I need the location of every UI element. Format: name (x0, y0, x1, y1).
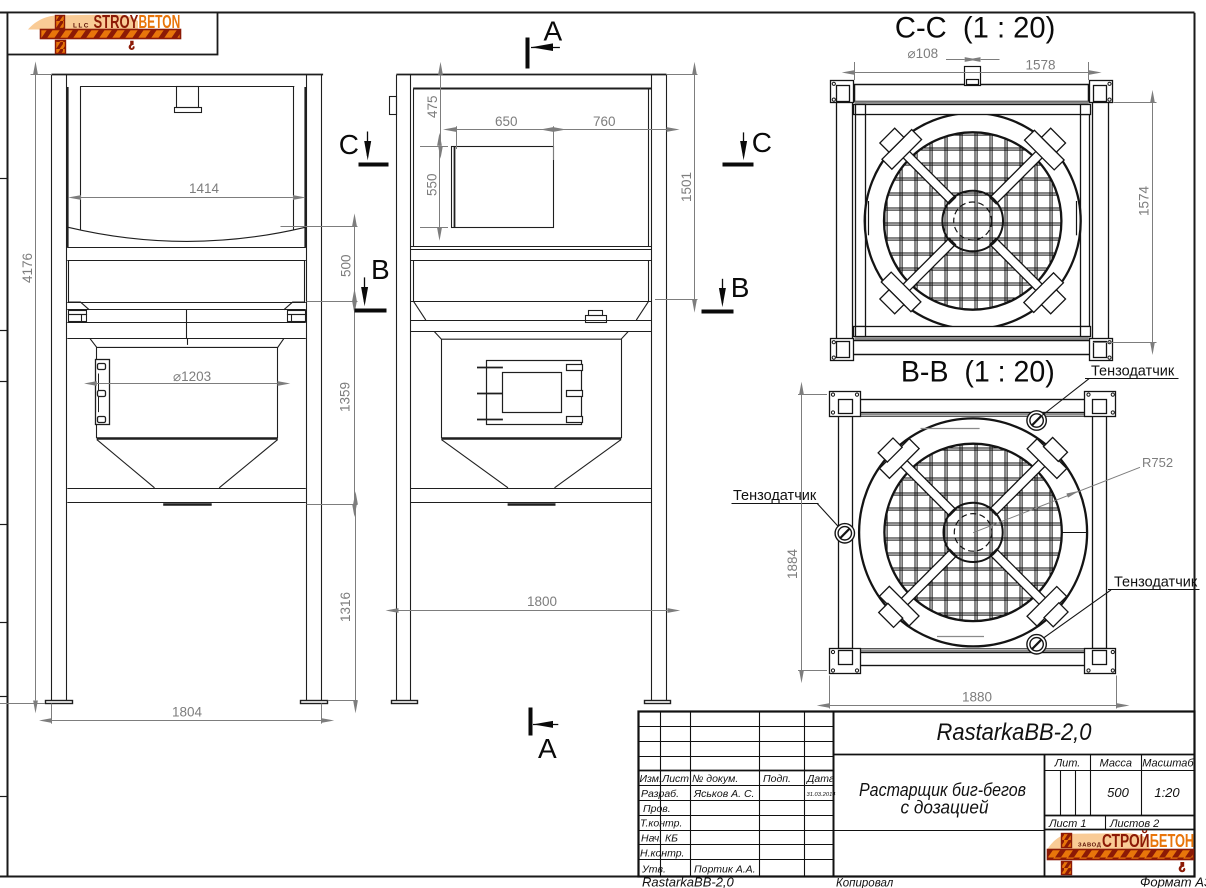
svg-text:Лист 1: Лист 1 (1048, 818, 1087, 830)
svg-text:Масса: Масса (1100, 758, 1133, 770)
svg-text:Яськов А. С.: Яськов А. С. (693, 788, 754, 800)
svg-text:Лит.: Лит. (1054, 758, 1081, 770)
svg-text:500: 500 (1107, 785, 1129, 800)
svg-text:1:20: 1:20 (1154, 785, 1180, 800)
svg-text:BETON: BETON (139, 12, 181, 32)
svg-text:RastarkaBB-2,0: RastarkaBB-2,0 (642, 875, 735, 888)
svg-text:C: C (339, 129, 359, 160)
svg-text:4176: 4176 (20, 253, 35, 283)
svg-text:650: 650 (495, 114, 518, 129)
svg-text:1574: 1574 (1137, 185, 1152, 216)
svg-text:1880: 1880 (962, 690, 992, 705)
svg-text:Т.контр.: Т.контр. (640, 818, 682, 830)
svg-text:⌀1203: ⌀1203 (173, 369, 211, 384)
svg-text:1884: 1884 (785, 548, 800, 579)
svg-text:RastarkaBB-2,0: RastarkaBB-2,0 (937, 719, 1093, 746)
svg-text:A: A (544, 15, 563, 46)
svg-text:1578: 1578 (1026, 58, 1056, 73)
svg-text:с дозацией: с дозацией (901, 797, 989, 818)
svg-text:1804: 1804 (172, 705, 203, 720)
svg-text:STROY: STROY (94, 12, 139, 32)
svg-text:Тензодатчик: Тензодатчик (1114, 575, 1198, 591)
svg-text:760: 760 (593, 114, 616, 129)
svg-text:Разраб.: Разраб. (641, 788, 679, 800)
svg-text:R752: R752 (1142, 455, 1173, 470)
svg-text:Нач. КБ: Нач. КБ (641, 833, 678, 845)
svg-text:1359: 1359 (338, 382, 353, 412)
svg-text:Изм.: Изм. (640, 773, 662, 785)
svg-text:Формат А3: Формат А3 (1140, 875, 1206, 888)
svg-text:Пров.: Пров. (643, 803, 671, 815)
svg-text:B: B (731, 272, 750, 303)
svg-text:Н.контр.: Н.контр. (640, 848, 684, 860)
svg-text:31.03.2014: 31.03.2014 (807, 792, 836, 798)
svg-text:ЗАВОД: ЗАВОД (1078, 843, 1102, 849)
svg-text:Тензодатчик: Тензодатчик (733, 488, 817, 504)
svg-text:Лист: Лист (661, 773, 689, 785)
svg-text:B-B (1 : 20): B-B (1 : 20) (901, 356, 1055, 389)
svg-text:1501: 1501 (679, 172, 694, 202)
svg-text:Подп.: Подп. (763, 773, 791, 785)
svg-text:1800: 1800 (527, 594, 557, 609)
svg-text:⌀108: ⌀108 (908, 46, 939, 61)
svg-text:475: 475 (425, 95, 440, 118)
svg-text:Тензодатчик: Тензодатчик (1091, 364, 1175, 380)
svg-text:1316: 1316 (338, 592, 353, 622)
svg-text:550: 550 (425, 173, 440, 196)
svg-text:A: A (538, 733, 557, 764)
svg-text:СТРОЙ: СТРОЙ (1102, 830, 1150, 851)
svg-text:БЕТОН: БЕТОН (1150, 831, 1195, 851)
svg-text:Листов 2: Листов 2 (1109, 818, 1159, 830)
svg-text:Масштаб: Масштаб (1142, 758, 1194, 770)
svg-text:B: B (371, 254, 390, 285)
svg-text:Дата: Дата (806, 773, 835, 785)
svg-text:№ докум.: № докум. (692, 773, 738, 785)
svg-text:Копировал: Копировал (836, 878, 894, 888)
svg-text:1414: 1414 (189, 181, 220, 196)
svg-text:C-C (1 : 20): C-C (1 : 20) (895, 12, 1055, 45)
svg-text:LLC: LLC (73, 23, 90, 30)
svg-text:C: C (752, 127, 772, 158)
svg-text:500: 500 (339, 254, 354, 277)
